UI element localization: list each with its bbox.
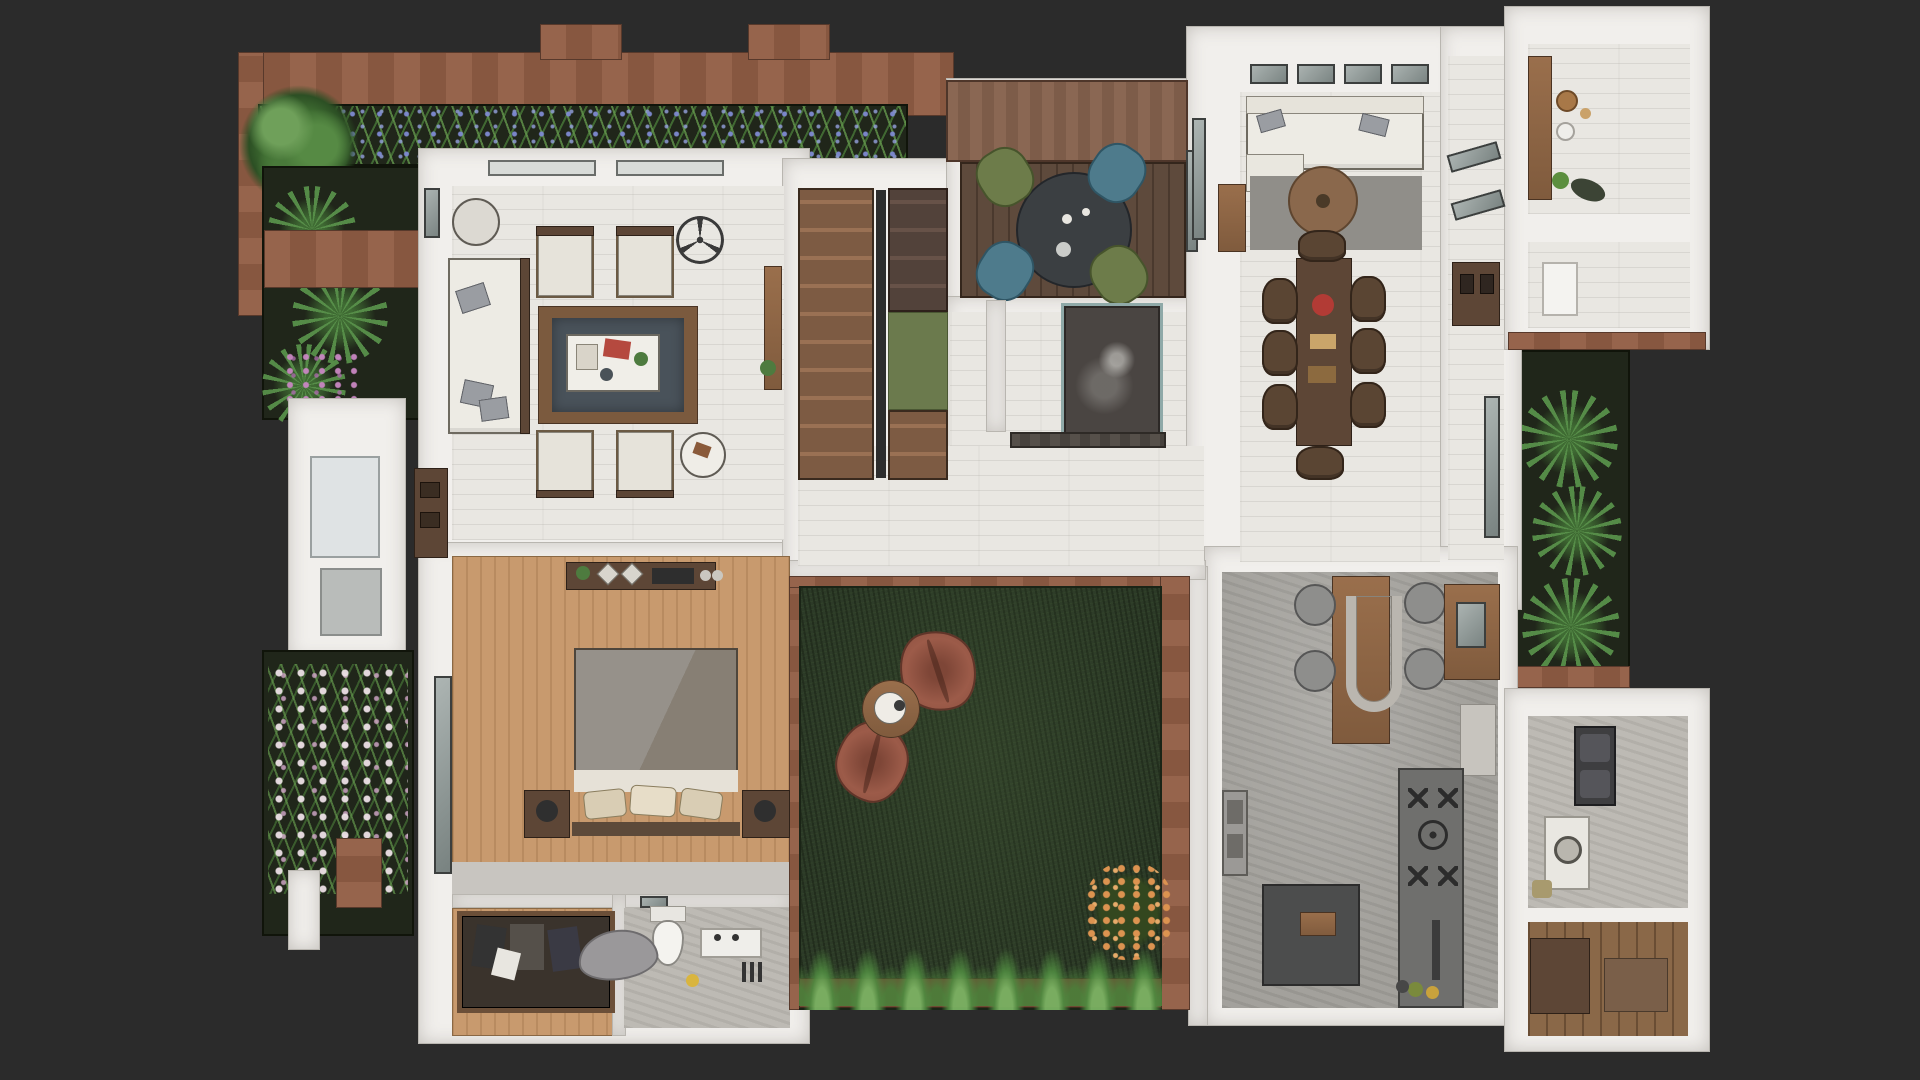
bath-vanity (700, 928, 762, 958)
kitchen-bottle-b (1426, 986, 1439, 999)
top-right-sill (1508, 332, 1706, 350)
dining-chair-n (1298, 230, 1346, 262)
southwest-deck-edge (336, 838, 382, 908)
corridor-cabinet (1452, 262, 1500, 326)
stairs-lower-flight (798, 188, 874, 480)
office-desk (1528, 56, 1552, 200)
west-deck-walk (264, 230, 422, 288)
bed-headboard (572, 822, 740, 836)
kitchen-sink-basin-b (1227, 834, 1243, 858)
kitchen-stool-b (1294, 650, 1336, 692)
corridor-window-south (1484, 396, 1500, 538)
washing-machine-door (1554, 836, 1582, 864)
hall-alcove-wall (986, 300, 1006, 432)
east-garden-yucca-b (1532, 486, 1622, 576)
armchair-se (616, 430, 674, 498)
wc-fixture (1542, 262, 1578, 316)
family-window-west (1192, 118, 1206, 240)
sofa-arm-wood (520, 258, 530, 434)
kitchen-stool-c (1404, 582, 1446, 624)
dining-table (1296, 258, 1352, 446)
dining-centerpiece-red (1312, 294, 1334, 316)
office-item-cup (1580, 108, 1591, 119)
floor-plan-canvas (0, 0, 1920, 1080)
vanity-faucet-b (732, 934, 739, 941)
laundry-stacked-door-b (1580, 770, 1610, 798)
kitchen-stool-d (1404, 648, 1446, 690)
office-item-bronze (1556, 90, 1578, 112)
towel-rail-b (750, 962, 754, 982)
shelf-dish-b (712, 570, 723, 581)
corridor-cabinet-door-a (1460, 274, 1474, 294)
bedroom-window-west (434, 676, 452, 874)
kitchen-west-wall (1188, 566, 1208, 1026)
armchair-sw (536, 430, 594, 498)
terrace-panel (310, 456, 380, 558)
office-item-green-ball (1552, 172, 1569, 189)
dining-tray-a (1310, 334, 1336, 349)
laundry-basket (1532, 880, 1552, 898)
exterior-wall-tab (288, 870, 320, 950)
kitchen-island-bench (1346, 596, 1402, 712)
family-skylight-3 (1344, 64, 1382, 84)
den-north-wall (946, 80, 1188, 162)
towel-rail-a (742, 962, 746, 982)
door-panel-square-b (420, 512, 440, 528)
nightstand-right-lamp (754, 800, 776, 822)
orange-flower-bush (1084, 862, 1174, 960)
console-plant (760, 360, 776, 376)
nightstand-left-lamp (536, 800, 558, 822)
family-side-cabinet (1218, 184, 1246, 252)
vanity-faucet-a (714, 934, 721, 941)
mudroom-mat (1604, 958, 1668, 1012)
living-window-north-b (616, 160, 724, 176)
stairs-landing-green (888, 312, 948, 410)
cooktop-burner-main (1418, 820, 1448, 850)
bed-pillow-b (629, 784, 677, 817)
wardrobe-clothes-c (547, 926, 583, 972)
towel-rail-c (758, 962, 762, 982)
family-skylight-4 (1391, 64, 1429, 84)
armchair-ne-back (616, 226, 674, 236)
armchair-se-back (616, 490, 674, 498)
coffee-table-tray (576, 344, 598, 370)
coffee-table-plant (634, 352, 648, 366)
office-floor (1528, 44, 1690, 214)
office-item-plates (1556, 122, 1575, 141)
living-window-west (424, 188, 440, 238)
kitchen-stool-a (1294, 584, 1336, 626)
bed-pillow-c (678, 787, 723, 821)
family-skylight-1 (1250, 64, 1288, 84)
coffee-table-book (603, 338, 631, 359)
laundry-stacked-door-a (1580, 734, 1610, 762)
kitchen-wall-niche (1460, 704, 1496, 776)
bath-soap (686, 974, 699, 987)
coffee-table-bowl (600, 368, 613, 381)
cooktop-burner-d (1438, 866, 1458, 886)
armchair-sw-back (536, 490, 594, 498)
east-garden-deck-edge (1516, 666, 1630, 688)
patio-cup (894, 700, 905, 711)
dining-chair-e1 (1350, 276, 1386, 322)
corridor-cabinet-door-b (1480, 274, 1494, 294)
mudroom-bench (1530, 938, 1590, 1014)
east-garden-yucca-c (1522, 578, 1620, 676)
kitchen-bottle-c (1396, 980, 1409, 993)
dining-chair-w3 (1262, 384, 1298, 430)
door-panel-square-a (420, 482, 440, 498)
stairs-upper-flight (888, 188, 948, 312)
shelf-screen (652, 568, 694, 584)
family-round-rug-center (1316, 194, 1330, 208)
dining-chair-w1 (1262, 278, 1298, 324)
courtyard-frame-right (1160, 576, 1190, 1010)
living-side-table (452, 198, 500, 246)
shelf-plant (576, 566, 590, 580)
dining-chair-s (1296, 446, 1344, 480)
dining-chair-w2 (1262, 330, 1298, 376)
terrace-pad (320, 568, 382, 636)
fireplace-glass-box (1064, 306, 1160, 434)
cooktop-burner-a (1408, 788, 1428, 808)
stairs-lower-right (888, 410, 948, 480)
hall-floor-vent (1010, 432, 1166, 448)
dining-chair-e2 (1350, 328, 1386, 374)
kitchen-low-island-tray (1300, 912, 1336, 936)
shelf-dish-a (700, 570, 711, 581)
chimney-right (748, 24, 830, 60)
dining-tray-b (1308, 366, 1336, 383)
armchair-ne (616, 226, 674, 298)
utensil-rail (1432, 920, 1440, 980)
chimney-left (540, 24, 622, 60)
den-table-cup-a (1062, 214, 1072, 224)
east-garden-yucca-a (1520, 390, 1618, 488)
bed-blanket (574, 648, 738, 782)
bedroom-walkway (452, 862, 790, 896)
cooktop-burner-c (1408, 866, 1428, 886)
armchair-nw-back (536, 226, 594, 236)
family-skylight-2 (1297, 64, 1335, 84)
cooktop-burner-b (1438, 788, 1458, 808)
dining-chair-e3 (1350, 382, 1386, 428)
den-table-cup-b (1082, 208, 1090, 216)
bed-pillow-a (583, 788, 628, 820)
ceiling-fan-icon (676, 216, 724, 264)
kitchen-sink-basin-a (1227, 800, 1243, 824)
armchair-nw (536, 226, 594, 298)
stairs-rail (876, 190, 886, 478)
kitchen-cabinet-window (1456, 602, 1486, 648)
living-window-north-a (488, 160, 596, 176)
floor-plan-screenshot (0, 0, 1920, 1080)
kitchen-bottle-a (1408, 982, 1423, 997)
sofa-pillow-c (479, 396, 510, 422)
den-table-plate (1056, 242, 1071, 257)
